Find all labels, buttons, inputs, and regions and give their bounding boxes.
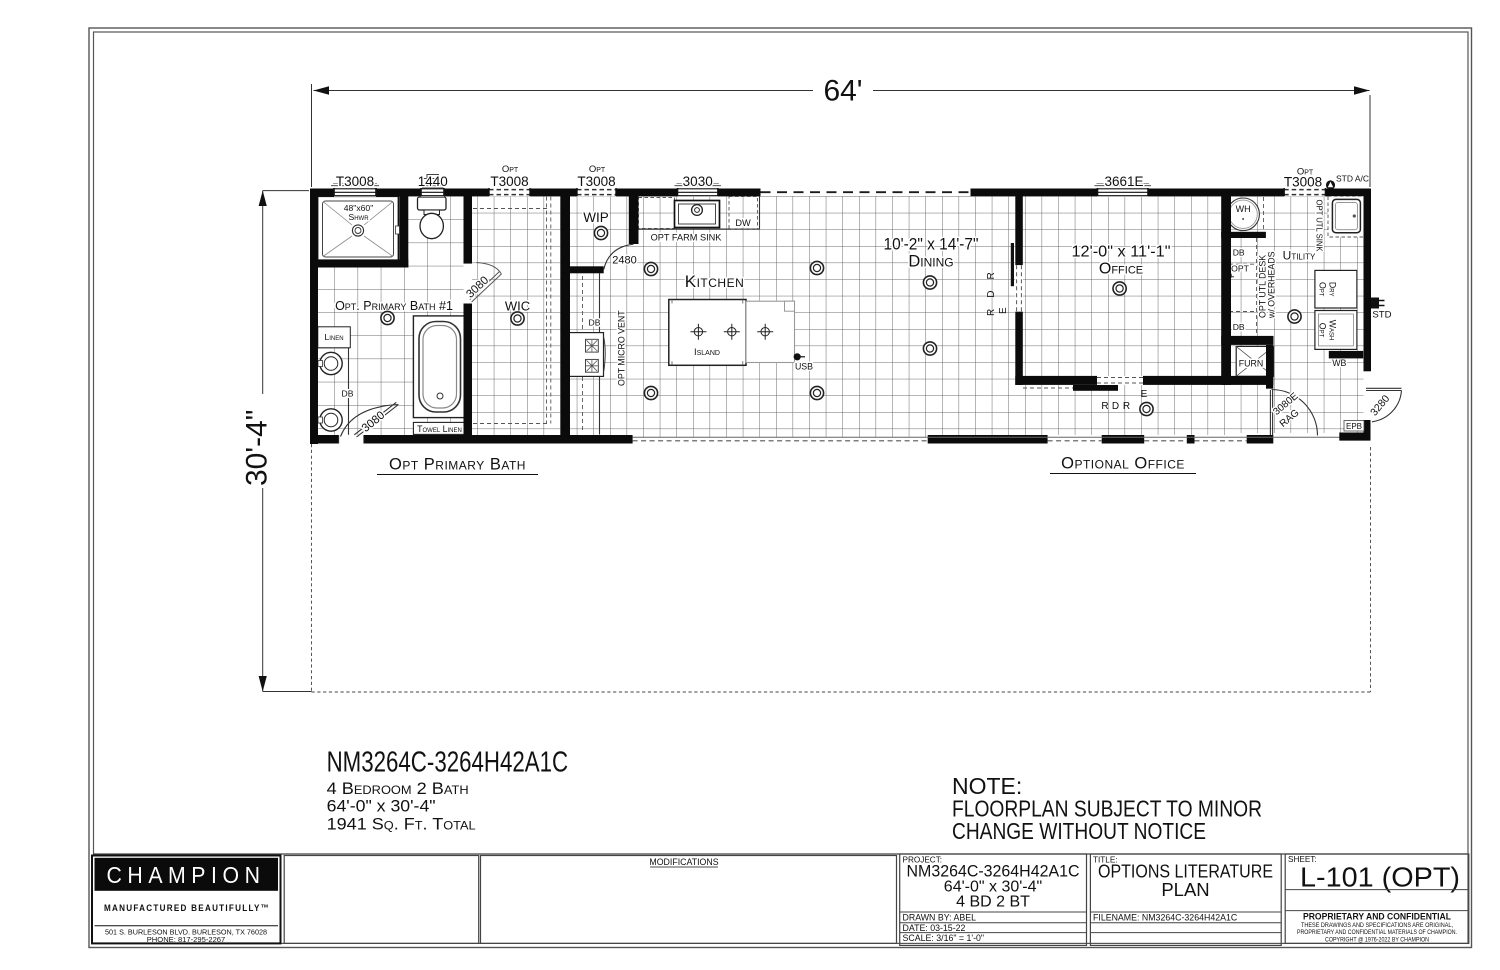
svg-text:R: R bbox=[1101, 401, 1108, 412]
svg-text:EPB: EPB bbox=[1346, 422, 1362, 431]
svg-text:Opt: Opt bbox=[502, 164, 519, 175]
svg-text:4 BD 2 BT: 4 BD 2 BT bbox=[956, 894, 1030, 911]
svg-text:Optional Office: Optional Office bbox=[1061, 455, 1185, 473]
svg-text:OPT: OPT bbox=[1231, 264, 1249, 274]
svg-text:THESE DRAWINGS AND SPECIFICATI: THESE DRAWINGS AND SPECIFICATIONS ARE OR… bbox=[1301, 922, 1453, 929]
svg-text:WH: WH bbox=[1236, 204, 1251, 214]
svg-text:3661E: 3661E bbox=[1104, 174, 1143, 189]
svg-text:Island: Island bbox=[694, 346, 720, 357]
svg-text:Linen: Linen bbox=[324, 332, 343, 342]
svg-text:SCALE: 3/16" = 1'-0": SCALE: 3/16" = 1'-0" bbox=[903, 933, 985, 943]
svg-text:L-101 (OPT): L-101 (OPT) bbox=[1300, 862, 1460, 893]
svg-text:Shwr: Shwr bbox=[348, 212, 369, 222]
svg-text:30'-4": 30'-4" bbox=[241, 410, 274, 486]
svg-text:w/ OVERHEADS: w/ OVERHEADS bbox=[1267, 251, 1277, 319]
svg-text:E: E bbox=[998, 307, 1009, 314]
svg-text:64': 64' bbox=[823, 75, 862, 108]
svg-text:DB: DB bbox=[589, 318, 601, 328]
svg-text:STD: STD bbox=[1372, 310, 1391, 321]
svg-text:STD A/C: STD A/C bbox=[1336, 174, 1369, 184]
svg-text:Dry: Dry bbox=[1328, 282, 1338, 297]
svg-text:4 Bedroom 2 Bath: 4 Bedroom 2 Bath bbox=[327, 779, 469, 798]
svg-text:Wash: Wash bbox=[1328, 320, 1338, 341]
svg-text:PROPRIETARY AND CONFIDENTIAL: PROPRIETARY AND CONFIDENTIAL bbox=[1303, 912, 1451, 922]
svg-text:Opt: Opt bbox=[1318, 282, 1328, 297]
svg-text:WB: WB bbox=[1332, 358, 1346, 368]
svg-text:Opt Primary Bath: Opt Primary Bath bbox=[389, 456, 526, 474]
svg-text:Opt. Primary Bath #1: Opt. Primary Bath #1 bbox=[335, 299, 453, 313]
svg-text:Kitchen: Kitchen bbox=[685, 272, 745, 291]
svg-text:Opt: Opt bbox=[589, 164, 606, 175]
svg-text:E: E bbox=[1141, 389, 1148, 400]
svg-text:PLAN: PLAN bbox=[1161, 879, 1209, 900]
svg-text:1440: 1440 bbox=[418, 174, 448, 189]
svg-text:DRAWN BY: ABEL: DRAWN BY: ABEL bbox=[903, 913, 977, 923]
svg-text:T3008: T3008 bbox=[577, 174, 615, 189]
svg-text:RDR: RDR bbox=[986, 261, 997, 316]
svg-text:NM3264C-3264H42A1C: NM3264C-3264H42A1C bbox=[327, 747, 568, 779]
svg-text:DB: DB bbox=[342, 389, 354, 399]
svg-text:OPT FARM SINK: OPT FARM SINK bbox=[651, 233, 723, 243]
svg-text:64'-0" x 30'-4": 64'-0" x 30'-4" bbox=[327, 797, 436, 816]
svg-text:1941 Sq. Ft. Total: 1941 Sq. Ft. Total bbox=[327, 815, 476, 834]
svg-text:DB: DB bbox=[1233, 248, 1245, 258]
svg-text:COPYRIGHT @ 1976-2022 BY CHAMP: COPYRIGHT @ 1976-2022 BY CHAMPION bbox=[1325, 937, 1429, 944]
svg-text:PROPRIETARY AND CONFIDENTIAL M: PROPRIETARY AND CONFIDENTIAL MATERIALS O… bbox=[1297, 929, 1457, 936]
svg-text:Towel Linen: Towel Linen bbox=[417, 424, 462, 434]
svg-text:3030: 3030 bbox=[683, 174, 713, 189]
svg-text:T3008: T3008 bbox=[490, 174, 528, 189]
svg-text:FURN: FURN bbox=[1239, 359, 1263, 369]
svg-text:PHONE: 817-295-2267: PHONE: 817-295-2267 bbox=[147, 935, 226, 944]
svg-text:10'-2" x 14'-7": 10'-2" x 14'-7" bbox=[884, 236, 979, 254]
svg-text:2480: 2480 bbox=[612, 255, 636, 267]
svg-text:T3008: T3008 bbox=[336, 174, 374, 189]
svg-text:CHANGE WITHOUT NOTICE: CHANGE WITHOUT NOTICE bbox=[952, 818, 1206, 844]
svg-text:USB: USB bbox=[795, 362, 813, 372]
svg-text:DATE: 03-15-22: DATE: 03-15-22 bbox=[903, 923, 966, 933]
svg-text:Office: Office bbox=[1099, 261, 1143, 278]
svg-text:WIP: WIP bbox=[583, 210, 609, 225]
svg-text:DB: DB bbox=[1233, 322, 1245, 332]
svg-text:Opt: Opt bbox=[1297, 167, 1314, 178]
svg-text:D: D bbox=[1112, 401, 1119, 412]
svg-text:MANUFACTURED BEAUTIFULLY™: MANUFACTURED BEAUTIFULLY™ bbox=[104, 903, 270, 914]
svg-text:OPT UTL SINK: OPT UTL SINK bbox=[1315, 200, 1325, 252]
svg-text:Utility: Utility bbox=[1283, 249, 1316, 263]
svg-text:R: R bbox=[1123, 401, 1130, 412]
svg-text:FILENAME: NM3264C-3264H42A1C: FILENAME: NM3264C-3264H42A1C bbox=[1093, 913, 1238, 923]
svg-text:Dining: Dining bbox=[908, 253, 953, 271]
svg-text:MODIFICATIONS: MODIFICATIONS bbox=[649, 857, 718, 867]
svg-text:CHAMPION: CHAMPION bbox=[107, 862, 266, 888]
svg-text:DW: DW bbox=[735, 218, 751, 228]
svg-text:Opt: Opt bbox=[1318, 323, 1328, 338]
svg-text:OPT MICRO VENT: OPT MICRO VENT bbox=[617, 310, 627, 386]
svg-text:12'-0" x 11'-1": 12'-0" x 11'-1" bbox=[1072, 244, 1171, 261]
